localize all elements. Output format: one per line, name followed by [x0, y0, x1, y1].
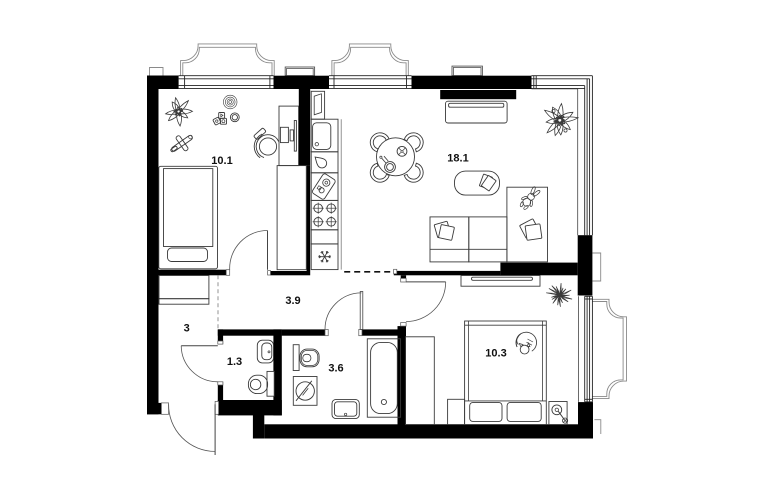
svg-text:18.1: 18.1	[447, 153, 468, 165]
svg-text:3.9: 3.9	[285, 295, 300, 307]
svg-text:10.3: 10.3	[485, 348, 506, 360]
svg-text:1.3: 1.3	[227, 356, 242, 368]
svg-text:3.6: 3.6	[328, 363, 343, 375]
svg-text:10.1: 10.1	[211, 155, 232, 167]
svg-text:3: 3	[184, 323, 190, 335]
